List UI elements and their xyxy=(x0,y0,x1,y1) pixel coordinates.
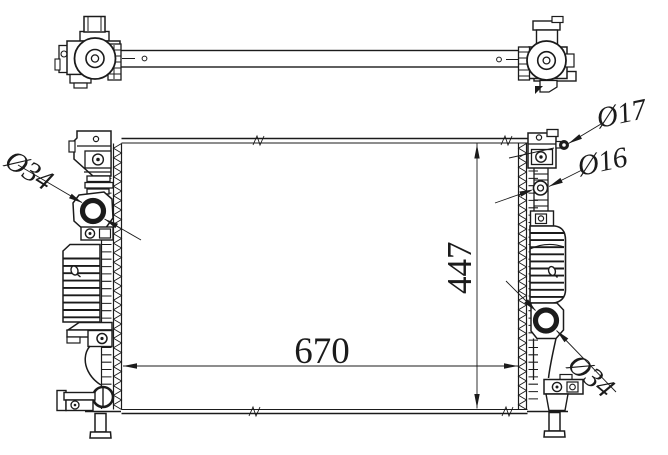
fin-zigzag-left xyxy=(114,144,122,410)
filler-neck xyxy=(84,17,105,33)
arrowhead xyxy=(123,363,137,368)
arrowhead xyxy=(474,394,479,408)
drawing-canvas: 670 447 Ø34 Ø17 Ø16 Ø34 xyxy=(0,0,668,455)
left-tank-waist xyxy=(85,346,101,385)
front-view: 670 447 Ø34 Ø17 Ø16 Ø34 xyxy=(0,93,651,438)
arrowhead xyxy=(474,145,479,159)
label-outlet-diameter: Ø34 xyxy=(561,347,621,404)
top-view xyxy=(55,17,576,95)
label-upper-fitting-diameter: Ø17 xyxy=(593,93,651,135)
break-mark xyxy=(501,136,512,145)
mounting-pin-right xyxy=(549,413,560,432)
top-view-left-tank-fitting xyxy=(55,17,121,89)
arrowhead xyxy=(569,134,583,143)
label-core-height: 447 xyxy=(440,242,479,295)
right-tank-body xyxy=(530,226,566,303)
arrowhead xyxy=(549,178,563,187)
left-port-boss xyxy=(75,38,116,79)
upper-fitting-port xyxy=(561,142,568,149)
mounting-pin-left xyxy=(95,414,106,433)
arrowhead xyxy=(504,363,518,368)
break-mark xyxy=(253,136,264,145)
top-view-right-tank-fitting xyxy=(519,17,577,95)
radiator-drawing: 670 447 Ø34 Ø17 Ø16 Ø34 xyxy=(0,0,668,455)
right-tank xyxy=(527,130,583,438)
dimension-width: 670 xyxy=(123,331,518,372)
right-port-boss xyxy=(527,41,566,80)
left-tank xyxy=(57,131,121,438)
dimension-height: 447 xyxy=(440,144,479,409)
lower-fitting-port xyxy=(534,181,548,195)
break-mark xyxy=(249,407,260,416)
label-lower-fitting-diameter: Ø16 xyxy=(574,141,631,183)
break-mark xyxy=(502,407,513,416)
left-mid-bracket xyxy=(68,323,112,331)
fin-zigzag-right xyxy=(519,144,527,410)
callout-lower-fitting-diameter: Ø16 xyxy=(495,141,631,203)
label-inlet-diameter: Ø34 xyxy=(0,143,59,197)
top-view-core-bar xyxy=(120,51,524,68)
label-core-width: 670 xyxy=(294,331,350,372)
inlet-port-boss xyxy=(73,192,113,230)
